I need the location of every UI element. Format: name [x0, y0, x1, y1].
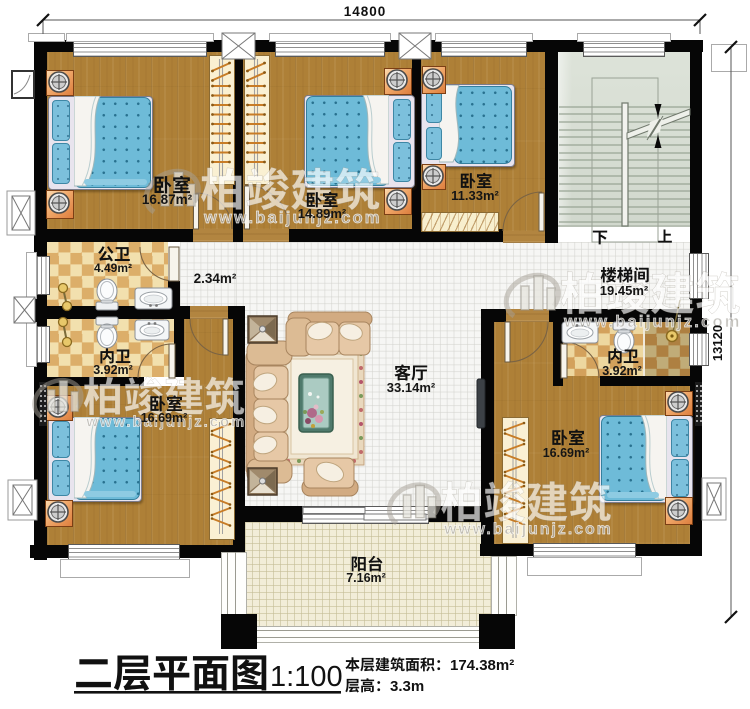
svg-text:www.baijunjz.com: www.baijunjz.com [443, 521, 613, 538]
svg-text:3.3m: 3.3m [390, 678, 424, 695]
svg-text:3.92m²: 3.92m² [93, 363, 133, 377]
svg-text:2.34m²: 2.34m² [194, 271, 237, 286]
svg-text:11.33m²: 11.33m² [451, 188, 499, 203]
svg-text:7.16m²: 7.16m² [346, 571, 386, 585]
svg-text:16.87m²: 16.87m² [142, 192, 193, 207]
svg-text:16.69m²: 16.69m² [543, 446, 590, 460]
svg-text:33.14m²: 33.14m² [387, 380, 436, 395]
svg-text:16.69m²: 16.69m² [141, 411, 188, 425]
svg-text:www.baijunjz.com: www.baijunjz.com [203, 209, 382, 227]
svg-text:1:100: 1:100 [270, 661, 343, 693]
svg-text:14.89m²: 14.89m² [298, 206, 347, 221]
svg-text:4.49m²: 4.49m² [94, 261, 132, 275]
svg-text:3.92m²: 3.92m² [602, 364, 642, 378]
svg-text:19.45m²: 19.45m² [600, 283, 649, 298]
svg-text:14800: 14800 [344, 4, 387, 19]
svg-text:13120: 13120 [710, 325, 725, 361]
svg-text:174.38m²: 174.38m² [450, 657, 514, 674]
